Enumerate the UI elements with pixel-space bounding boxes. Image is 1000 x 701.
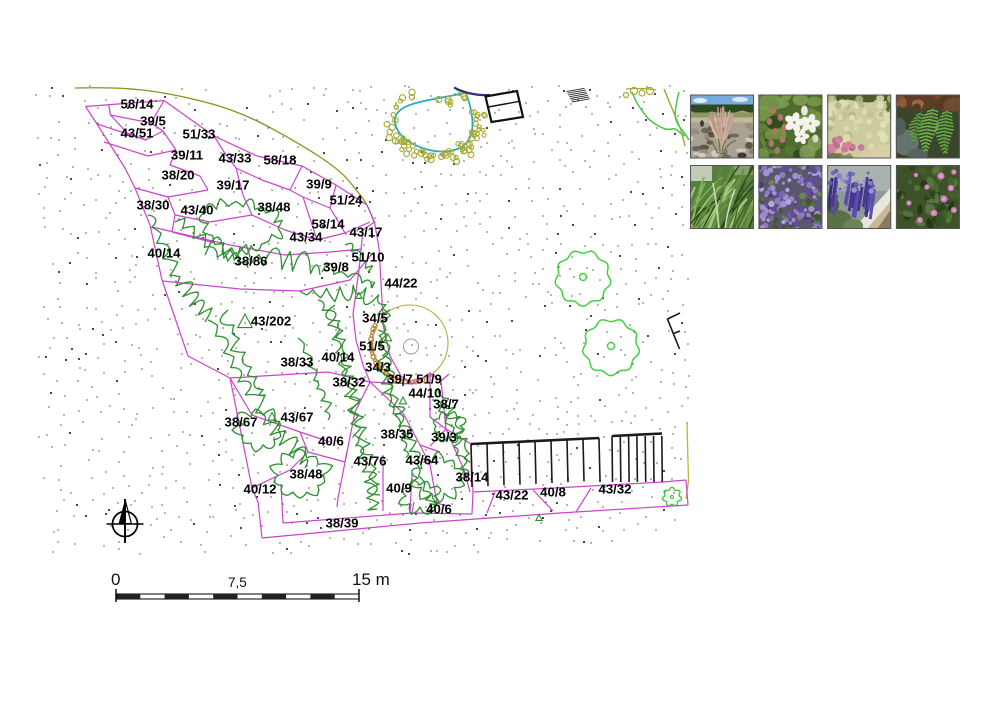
svg-text:43/67: 43/67 [280, 410, 313, 425]
svg-text:38/20: 38/20 [161, 168, 194, 183]
svg-text:38/30: 38/30 [136, 198, 169, 213]
svg-text:43/40: 43/40 [180, 203, 213, 218]
svg-text:40/12: 40/12 [243, 482, 276, 497]
svg-text:38/86: 38/86 [234, 254, 267, 269]
svg-text:58/18: 58/18 [263, 153, 296, 168]
svg-text:38/7: 38/7 [433, 397, 459, 412]
svg-text:39/8: 39/8 [323, 260, 349, 275]
svg-text:40/6: 40/6 [318, 434, 344, 449]
svg-text:40/14: 40/14 [321, 350, 355, 365]
svg-text:51/24: 51/24 [329, 193, 363, 208]
svg-text:38/39: 38/39 [325, 516, 358, 531]
svg-text:43/202: 43/202 [251, 314, 291, 329]
svg-text:43/34: 43/34 [289, 230, 323, 245]
svg-text:39/11: 39/11 [171, 148, 203, 163]
svg-text:38/48: 38/48 [289, 467, 322, 482]
svg-text:39/3: 39/3 [431, 430, 457, 445]
svg-text:43/17: 43/17 [349, 225, 382, 240]
svg-text:0: 0 [111, 570, 120, 589]
svg-text:34/5: 34/5 [362, 311, 388, 326]
svg-text:39/17: 39/17 [216, 178, 249, 193]
svg-text:43/32: 43/32 [598, 482, 631, 497]
svg-text:51/9: 51/9 [416, 372, 442, 387]
svg-text:43/76: 43/76 [353, 454, 386, 469]
svg-text:38/33: 38/33 [280, 355, 313, 370]
svg-text:15 m: 15 m [352, 570, 390, 589]
svg-text:38/48: 38/48 [257, 200, 290, 215]
svg-text:40/6: 40/6 [426, 502, 452, 517]
svg-text:40/9: 40/9 [386, 481, 412, 496]
svg-text:38/32: 38/32 [332, 375, 365, 390]
svg-text:43/51: 43/51 [120, 126, 153, 141]
svg-text:39/9: 39/9 [306, 177, 332, 192]
svg-text:44/22: 44/22 [384, 276, 417, 291]
svg-text:43/33: 43/33 [218, 151, 251, 166]
svg-text:38/14: 38/14 [455, 470, 489, 485]
svg-text:43/22: 43/22 [495, 488, 528, 503]
svg-text:38/35: 38/35 [380, 427, 413, 442]
svg-text:39/7: 39/7 [387, 372, 413, 387]
svg-text:7,5: 7,5 [228, 575, 247, 590]
svg-text:51/33: 51/33 [182, 127, 215, 142]
svg-text:38/67: 38/67 [224, 415, 257, 430]
svg-text:51/10: 51/10 [351, 250, 384, 265]
svg-text:51/5: 51/5 [359, 339, 385, 354]
svg-text:58/14: 58/14 [120, 97, 154, 112]
svg-text:40/8: 40/8 [540, 485, 566, 500]
svg-text:40/14: 40/14 [147, 246, 181, 261]
svg-text:43/64: 43/64 [405, 453, 439, 468]
